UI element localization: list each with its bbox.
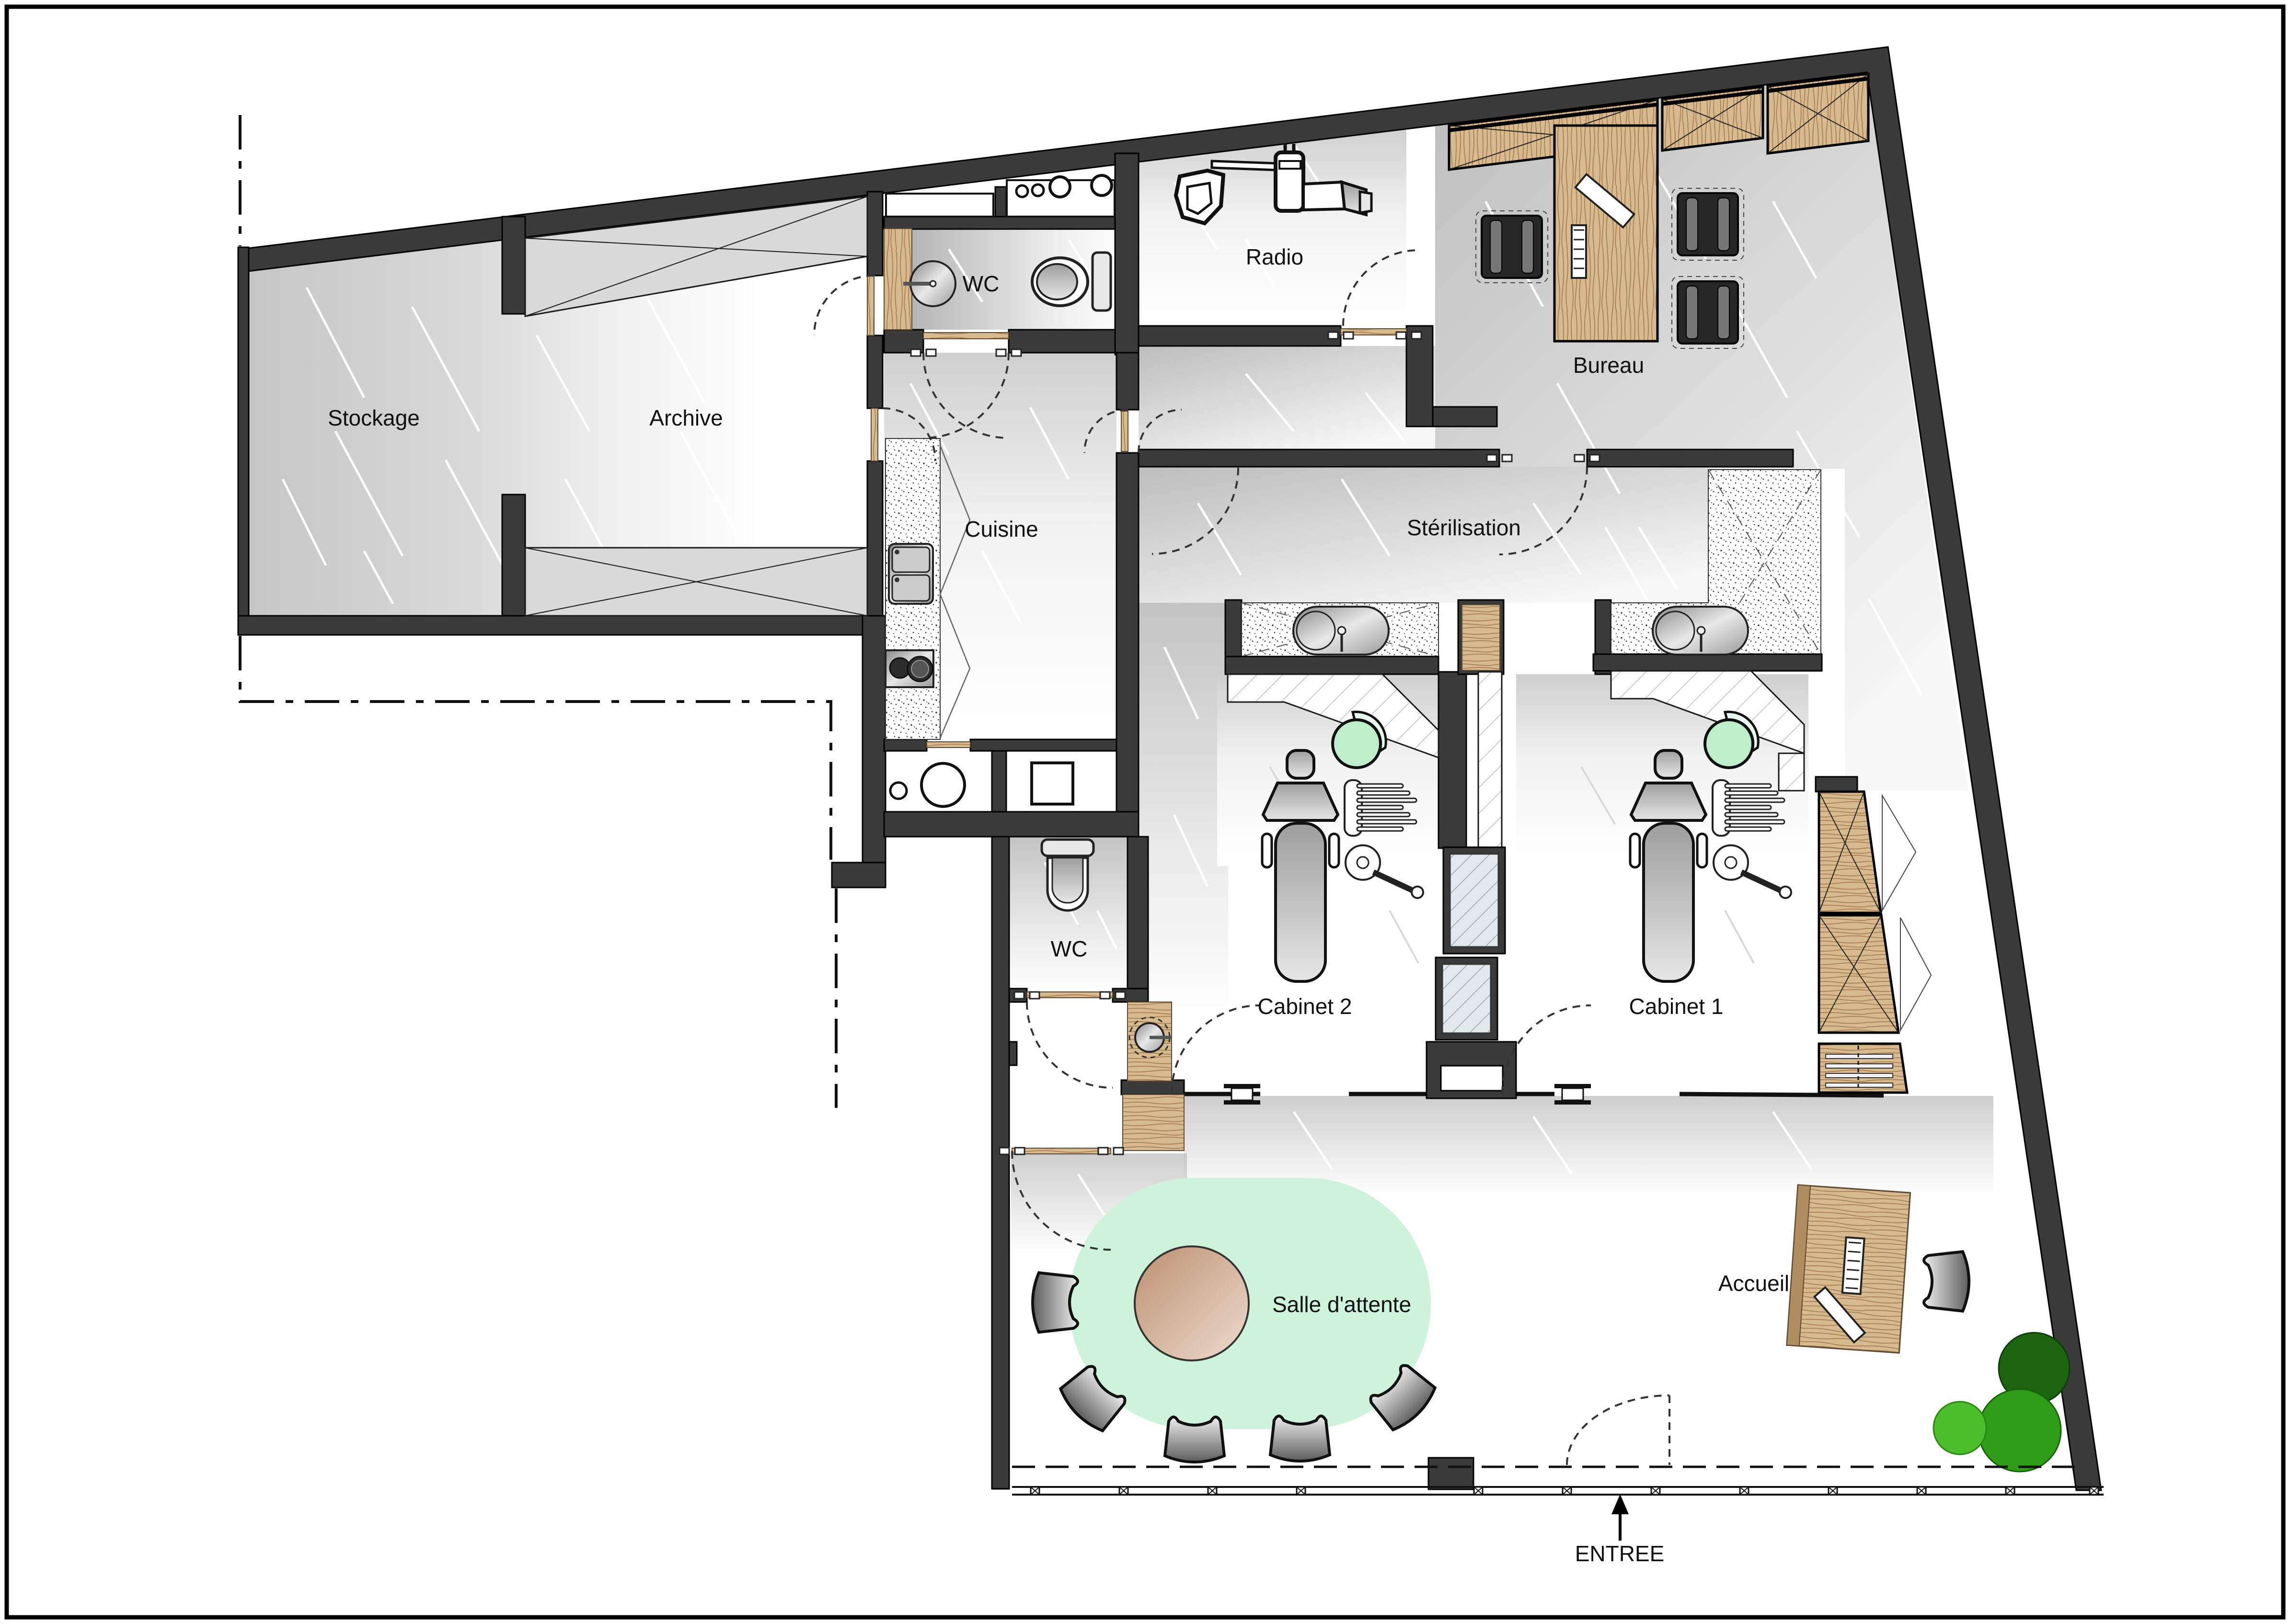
svg-text:Cabinet 1: Cabinet 1 [1629, 994, 1724, 1019]
svg-text:ENTREE: ENTREE [1575, 1541, 1665, 1566]
svg-text:Stockage: Stockage [328, 405, 420, 430]
svg-text:Salle d'attente: Salle d'attente [1272, 1292, 1411, 1317]
svg-text:Cabinet 2: Cabinet 2 [1258, 994, 1352, 1019]
svg-text:WC: WC [963, 271, 1000, 296]
svg-text:Radio: Radio [1246, 244, 1303, 269]
svg-text:Bureau: Bureau [1573, 353, 1644, 378]
svg-text:WC: WC [1051, 936, 1088, 961]
svg-text:Stérilisation: Stérilisation [1407, 515, 1521, 540]
svg-text:Cuisine: Cuisine [965, 517, 1038, 541]
svg-text:Accueil: Accueil [1718, 1271, 1789, 1296]
svg-text:Archive: Archive [649, 405, 723, 430]
